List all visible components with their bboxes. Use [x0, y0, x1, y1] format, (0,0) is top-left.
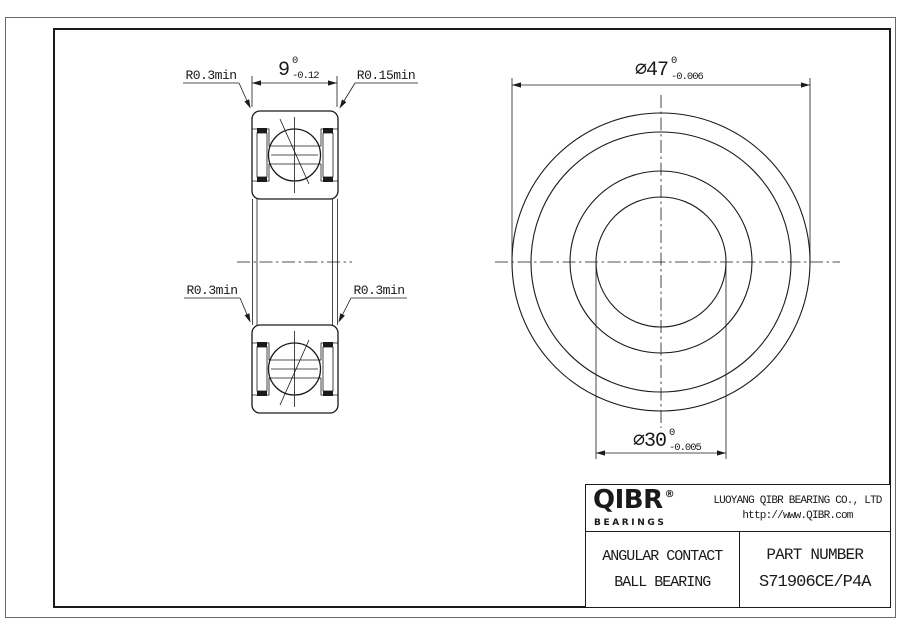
chamfer-label-top-right: R0.15min — [337, 68, 418, 110]
product-type-line1: ANGULAR CONTACT — [602, 548, 722, 565]
part-number-cell: PART NUMBER S71906CE/P4A — [740, 532, 891, 607]
bore-dim-upper-tol: 0 — [669, 427, 675, 439]
od-dim-lower-tol: -0.006 — [671, 71, 704, 83]
qibr-logo: QIBR® BEARINGS — [586, 485, 705, 531]
cage-left — [257, 133, 267, 177]
logo-subtext: BEARINGS — [593, 518, 705, 528]
cage-right — [323, 347, 333, 391]
chamfer-label-bottom-left: R0.3min — [184, 283, 253, 324]
company-name: LUOYANG QIBR BEARING CO., LTD — [713, 495, 881, 507]
svg-text:R0.15min: R0.15min — [357, 68, 415, 83]
website-url: http://www.QIBR.com — [742, 510, 852, 522]
logo-text: QIBR — [593, 485, 663, 515]
title-block-header-row: QIBR® BEARINGS LUOYANG QIBR BEARING CO.,… — [586, 485, 890, 532]
chamfer-label-top-left: R0.3min — [183, 68, 253, 110]
part-number-value: S71906CE/P4A — [759, 573, 871, 592]
bore-dim-value: ⌀30 — [633, 430, 666, 453]
logo-wordmark: QIBR® — [593, 489, 705, 517]
od-dim-value: ⌀47 — [635, 59, 668, 82]
title-block: QIBR® BEARINGS LUOYANG QIBR BEARING CO.,… — [585, 484, 890, 607]
section-top-half — [252, 111, 338, 199]
svg-text:R0.3min: R0.3min — [186, 283, 237, 298]
section-bottom-half — [252, 325, 338, 413]
title-block-detail-row: ANGULAR CONTACT BALL BEARING PART NUMBER… — [586, 532, 890, 607]
bearing-cross-section-view: 9 0 -0.12 R0.3min R0.15min R0.3min R0.3m… — [183, 55, 418, 413]
company-cell: LUOYANG QIBR BEARING CO., LTD http://www… — [705, 485, 890, 531]
svg-text:R0.3min: R0.3min — [185, 68, 236, 83]
width-dim-lower-tol: -0.12 — [292, 70, 319, 82]
registered-mark-icon: ® — [665, 489, 675, 500]
width-dim-upper-tol: 0 — [292, 55, 298, 67]
engineering-drawing-page: 9 0 -0.12 R0.3min R0.15min R0.3min R0.3m… — [0, 0, 900, 636]
svg-text:R0.3min: R0.3min — [353, 283, 404, 298]
cage-left — [257, 347, 267, 391]
bearing-front-view: ⌀47 0 -0.006 ⌀30 0 -0.005 — [495, 55, 840, 459]
cage-right — [323, 133, 333, 177]
width-dimension: 9 0 -0.12 — [252, 55, 337, 107]
width-dim-value: 9 — [278, 59, 289, 82]
part-number-label: PART NUMBER — [766, 546, 863, 564]
bore-dim-lower-tol: -0.005 — [669, 442, 702, 454]
product-type: ANGULAR CONTACT BALL BEARING — [586, 532, 740, 607]
od-dim-upper-tol: 0 — [671, 55, 677, 67]
product-type-line2: BALL BEARING — [614, 574, 710, 591]
chamfer-label-bottom-right: R0.3min — [336, 283, 407, 324]
